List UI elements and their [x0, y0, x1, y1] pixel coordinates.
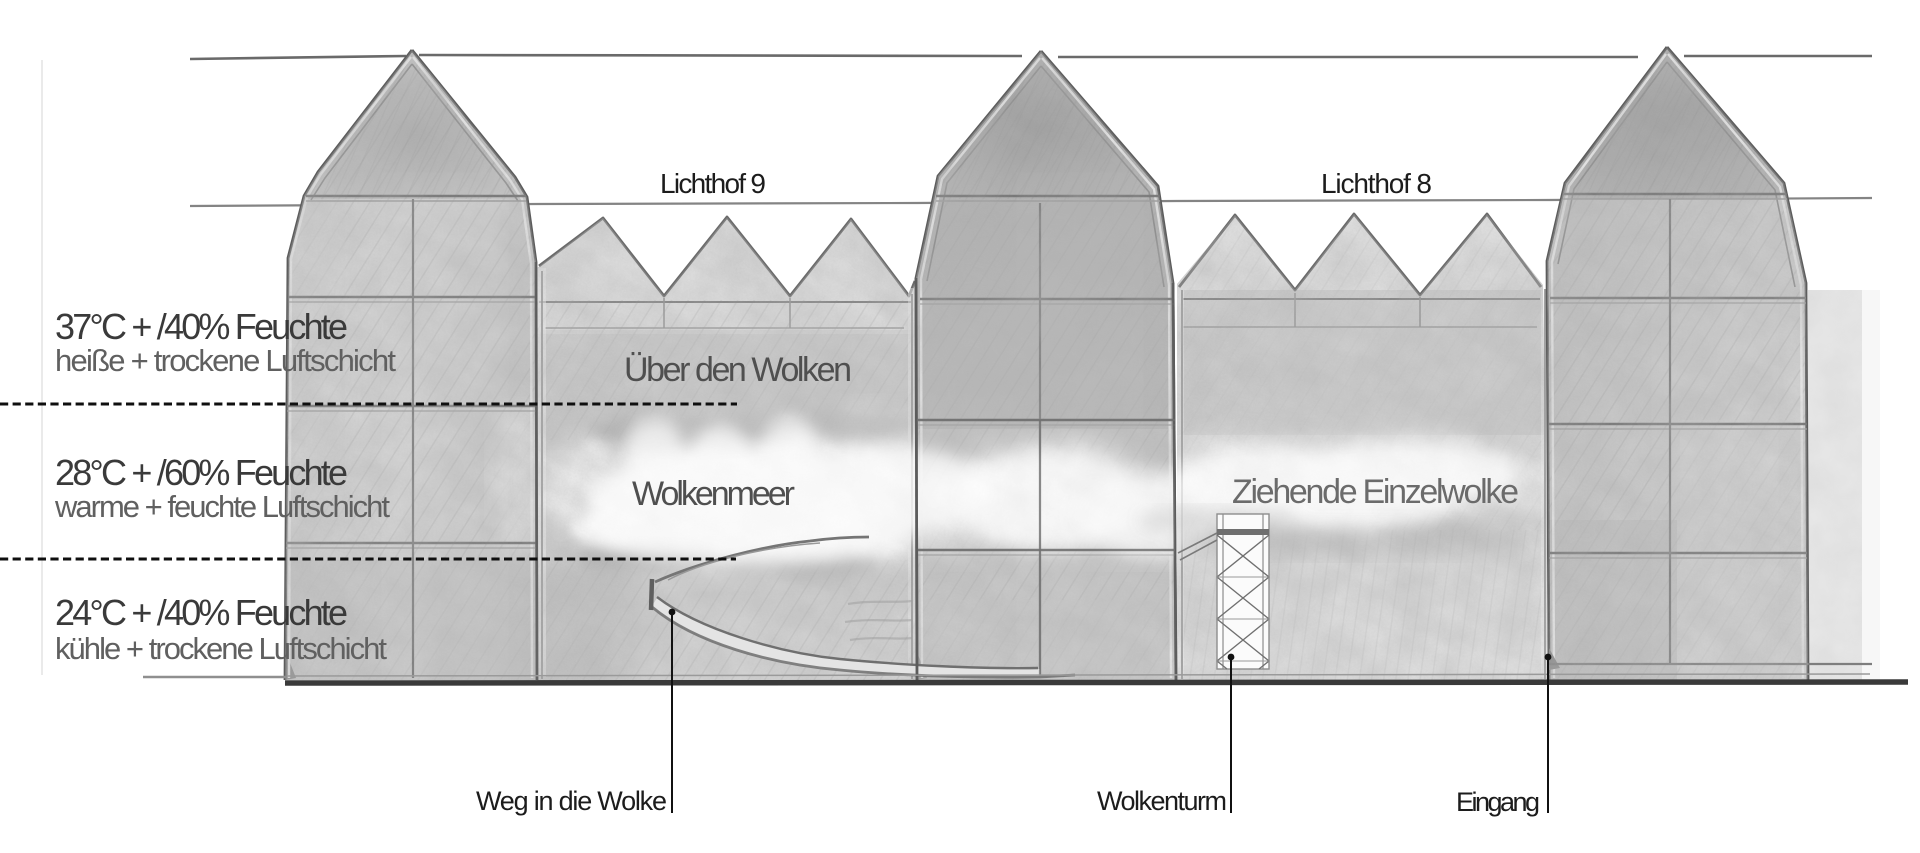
- svg-text:Weg in die Wolke: Weg in die Wolke: [476, 786, 667, 816]
- svg-text:37°C + /40% Feuchte: 37°C + /40% Feuchte: [55, 306, 348, 347]
- svg-text:kühle + trockene Luftschicht: kühle + trockene Luftschicht: [55, 631, 387, 666]
- svg-text:Eingang: Eingang: [1456, 787, 1540, 817]
- svg-text:Lichthof 8: Lichthof 8: [1321, 168, 1432, 199]
- svg-text:warme + feuchte Luftschicht: warme + feuchte Luftschicht: [54, 489, 390, 524]
- svg-text:Wolkenmeer: Wolkenmeer: [632, 475, 795, 513]
- svg-text:Über den Wolken: Über den Wolken: [624, 351, 852, 389]
- svg-text:Wolkenturm: Wolkenturm: [1097, 786, 1227, 816]
- svg-text:Ziehende Einzelwolke: Ziehende Einzelwolke: [1232, 473, 1519, 511]
- svg-text:24°C + /40% Feuchte: 24°C + /40% Feuchte: [55, 592, 348, 633]
- svg-text:28°C + /60% Feuchte: 28°C + /60% Feuchte: [55, 452, 348, 493]
- svg-text:heiße + trockene Luftschicht: heiße + trockene Luftschicht: [55, 343, 396, 378]
- svg-text:Lichthof 9: Lichthof 9: [660, 168, 766, 199]
